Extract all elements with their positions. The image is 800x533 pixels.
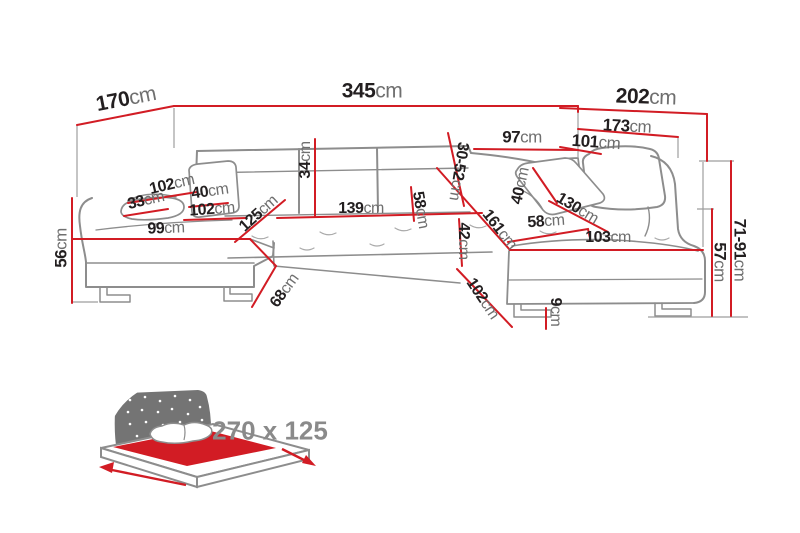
dim-label-97: 97cm	[502, 129, 542, 146]
dim-label-58-right: 58cm	[527, 213, 565, 232]
dim-label-139: 139cm	[338, 201, 384, 217]
sofa-dimension-diagram: 170cm 345cm 202cm 173cm 101cm 97cm 34cm …	[0, 0, 800, 533]
dim-label-202: 202cm	[615, 85, 676, 108]
dim-label-42: 42cm	[455, 222, 471, 259]
dim-label-9: 9cm	[547, 298, 563, 327]
dim-label-103: 103cm	[585, 230, 631, 246]
dim-label-101: 101cm	[571, 132, 621, 152]
dim-label-345: 345cm	[342, 81, 403, 102]
dim-label-34: 34cm	[298, 141, 314, 178]
dim-label-99: 99cm	[147, 220, 185, 237]
dim-label-71-91: 71-91cm	[732, 219, 749, 282]
sleeping-area-size-label: 270 x 125	[212, 416, 328, 447]
dim-label-56: 56cm	[53, 228, 70, 268]
dim-label-102-seat: 102cm	[189, 200, 236, 219]
dim-label-57: 57cm	[712, 242, 729, 282]
